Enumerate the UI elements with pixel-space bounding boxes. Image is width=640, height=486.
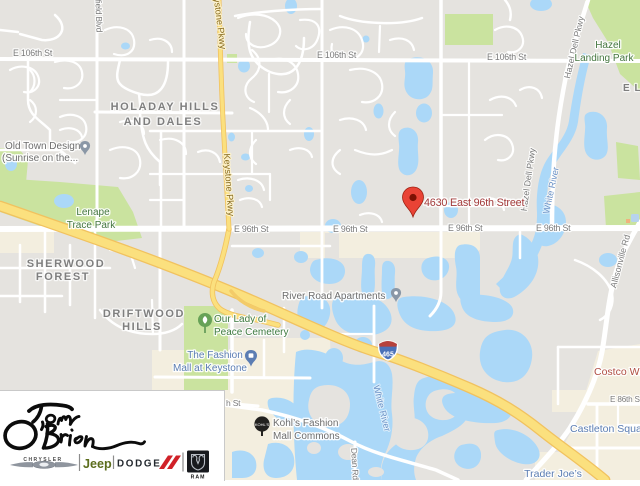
svg-text:(Sunrise on the...: (Sunrise on the...: [2, 153, 78, 164]
svg-text:Kohl’s Fashion: Kohl’s Fashion: [273, 418, 338, 429]
svg-text:Lenape: Lenape: [76, 207, 110, 218]
svg-text:DODGE: DODGE: [117, 459, 161, 470]
svg-text:Trace Park: Trace Park: [67, 220, 117, 231]
svg-text:KOHL'S: KOHL'S: [255, 422, 270, 427]
svg-text:4630 East 96th Street: 4630 East 96th Street: [424, 197, 524, 209]
svg-text:Dean Rd: Dean Rd: [349, 448, 361, 480]
svg-text:Castleton Square: Castleton Square: [570, 423, 640, 435]
svg-text:Peace Cemetery: Peace Cemetery: [214, 327, 288, 338]
svg-text:River Road Apartments: River Road Apartments: [282, 291, 385, 302]
svg-text:E 106th St: E 106th St: [317, 50, 357, 60]
svg-text:Jeep: Jeep: [83, 457, 112, 471]
svg-text:HOLADAY HILLS: HOLADAY HILLS: [111, 101, 220, 113]
svg-text:Costco Wholesale: Costco Wholesale: [594, 366, 640, 378]
svg-text:DRIFTWOOD: DRIFTWOOD: [103, 308, 185, 320]
svg-text:Mall Commons: Mall Commons: [273, 431, 340, 442]
svg-text:E 106th St: E 106th St: [487, 52, 527, 62]
svg-text:Old Town Design: Old Town Design: [5, 141, 80, 152]
svg-text:E 96th St: E 96th St: [333, 224, 368, 234]
svg-text:field Blvd: field Blvd: [93, 0, 104, 33]
svg-text:E L: E L: [623, 83, 640, 94]
svg-text:The Fashion: The Fashion: [187, 350, 243, 361]
svg-text:SHERWOOD: SHERWOOD: [27, 258, 106, 270]
svg-text:Our Lady of: Our Lady of: [214, 314, 266, 325]
svg-text:AND DALES: AND DALES: [124, 116, 203, 128]
svg-text:HILLS: HILLS: [122, 321, 162, 333]
svg-text:Hazel: Hazel: [595, 40, 621, 51]
svg-text:FOREST: FOREST: [36, 271, 90, 283]
svg-text:E 96th St: E 96th St: [536, 223, 571, 233]
svg-text:E 106th St: E 106th St: [13, 48, 53, 58]
svg-text:E 96th St: E 96th St: [234, 224, 269, 234]
svg-text:E 96th St: E 96th St: [448, 223, 483, 233]
svg-text:Trader Joe’s: Trader Joe’s: [524, 468, 582, 480]
svg-text:h St: h St: [226, 398, 241, 408]
svg-text:465: 465: [382, 352, 394, 359]
svg-text:Mall at Keystone: Mall at Keystone: [173, 363, 247, 374]
svg-text:Landing Park: Landing Park: [575, 53, 635, 64]
svg-text:E 86th St: E 86th St: [610, 395, 640, 404]
